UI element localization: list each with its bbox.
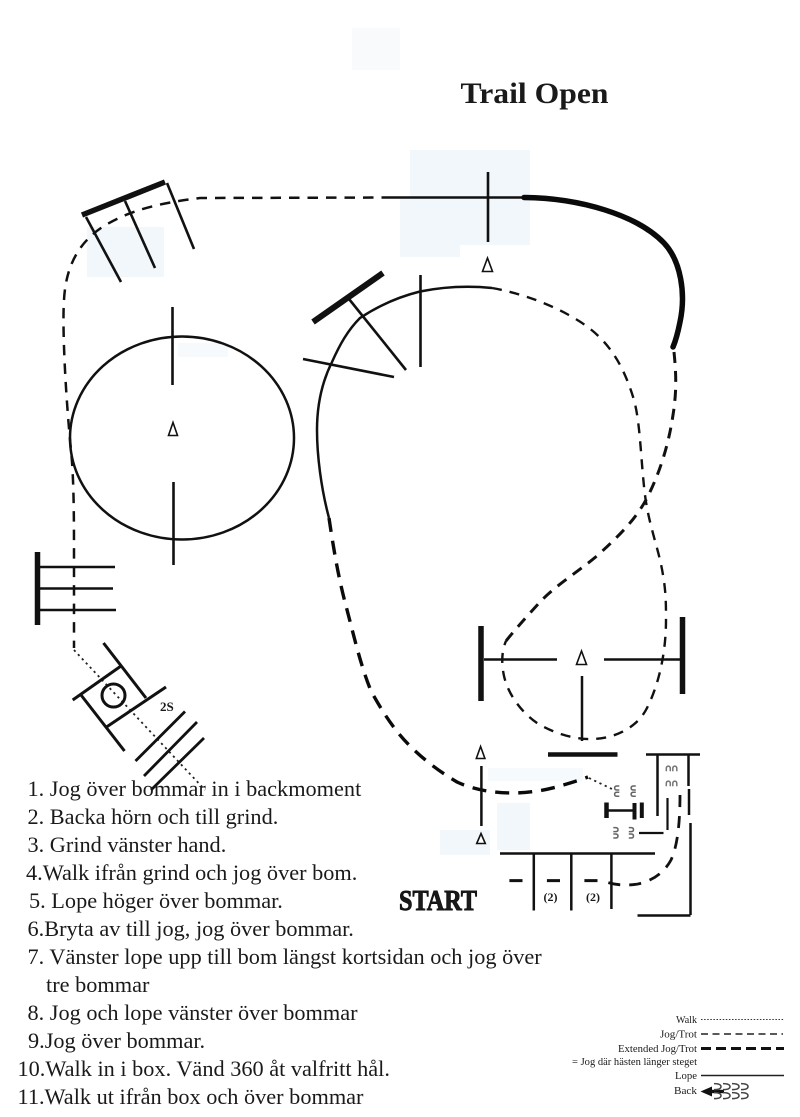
svg-text:3. Grind vänster hand.: 3. Grind vänster hand. [28,832,227,857]
svg-text:1. Jog över bommar in i backmo: 1. Jog över bommar in i backmoment [28,776,363,801]
svg-text:= Jog där hästen länger steget: = Jog där hästen länger steget [572,1056,697,1068]
svg-text:Jog/Trot: Jog/Trot [660,1029,697,1041]
svg-text:Trail Open: Trail Open [461,77,609,110]
svg-text:5. Lope höger över bommar.: 5. Lope höger över bommar. [29,888,283,913]
svg-text:(2): (2) [586,890,600,904]
svg-text:9.Jog över bommar.: 9.Jog över bommar. [28,1028,205,1053]
svg-text:Walk: Walk [676,1014,697,1026]
svg-text:Back: Back [674,1085,698,1097]
svg-text:7. Vänster lope upp till bom l: 7. Vänster lope upp till bom längst kort… [28,944,543,969]
svg-text:2. Backa hörn och till grind.: 2. Backa hörn och till grind. [28,804,279,829]
svg-text:8. Jog och lope vänster över b: 8. Jog och lope vänster över bommar [28,1000,359,1025]
svg-text:4.Walk ifrån grind och jog öve: 4.Walk ifrån grind och jog över bom. [26,860,357,885]
svg-text:tre bommar: tre bommar [46,972,150,997]
svg-text:10.Walk in i box. Vänd 360 åt: 10.Walk in i box. Vänd 360 åt valfritt h… [18,1056,390,1081]
svg-text:6.Bryta av till jog, jog över: 6.Bryta av till jog, jog över bommar. [28,916,354,941]
svg-text:START: START [399,886,477,917]
svg-text:Lope: Lope [675,1070,697,1082]
svg-text:(2): (2) [544,890,558,904]
svg-text:11.Walk ut ifrån box och över: 11.Walk ut ifrån box och över bommar [18,1084,365,1109]
svg-text:Extended Jog/Trot: Extended Jog/Trot [618,1043,697,1055]
svg-text:2S: 2S [160,699,174,714]
